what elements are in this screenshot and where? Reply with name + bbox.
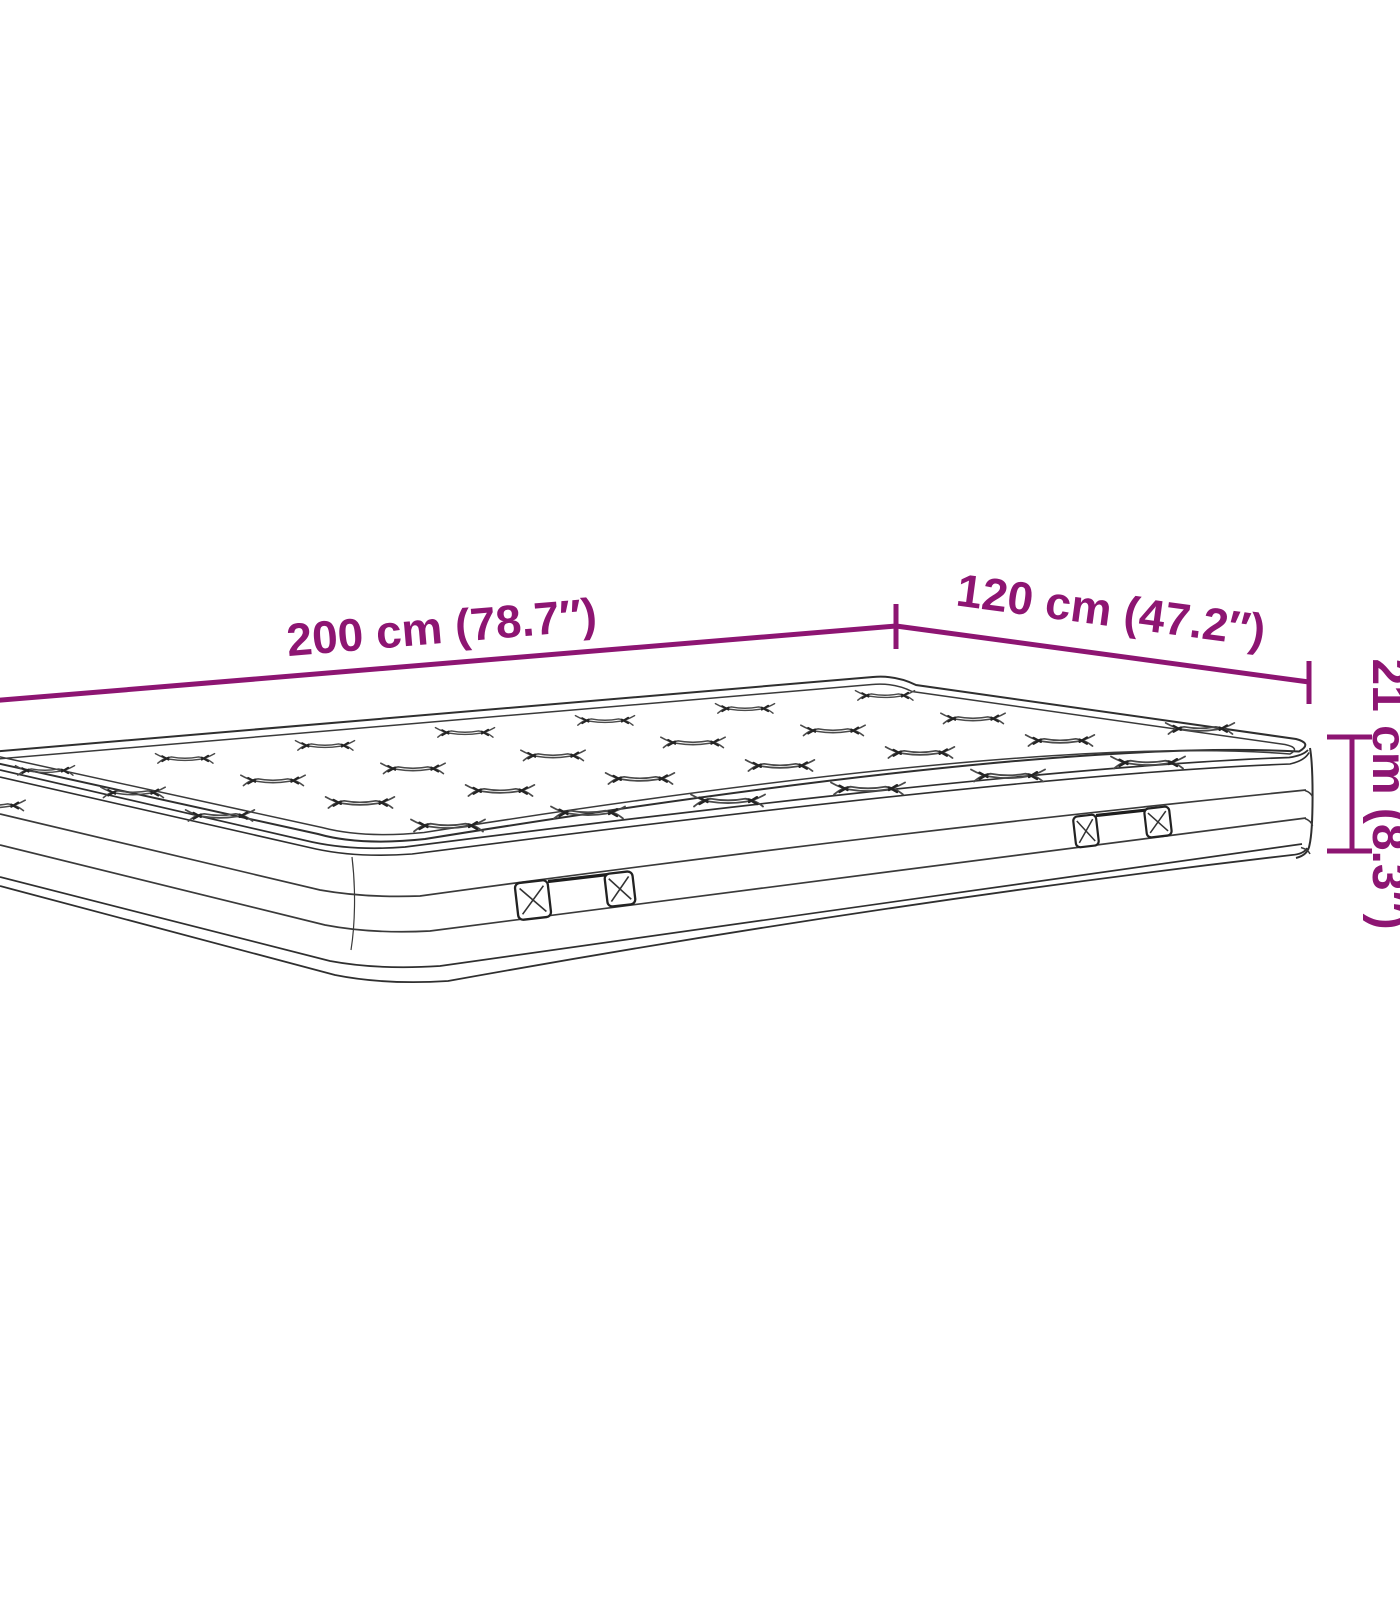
svg-text:21 cm (8.3″): 21 cm (8.3″): [1362, 658, 1400, 929]
